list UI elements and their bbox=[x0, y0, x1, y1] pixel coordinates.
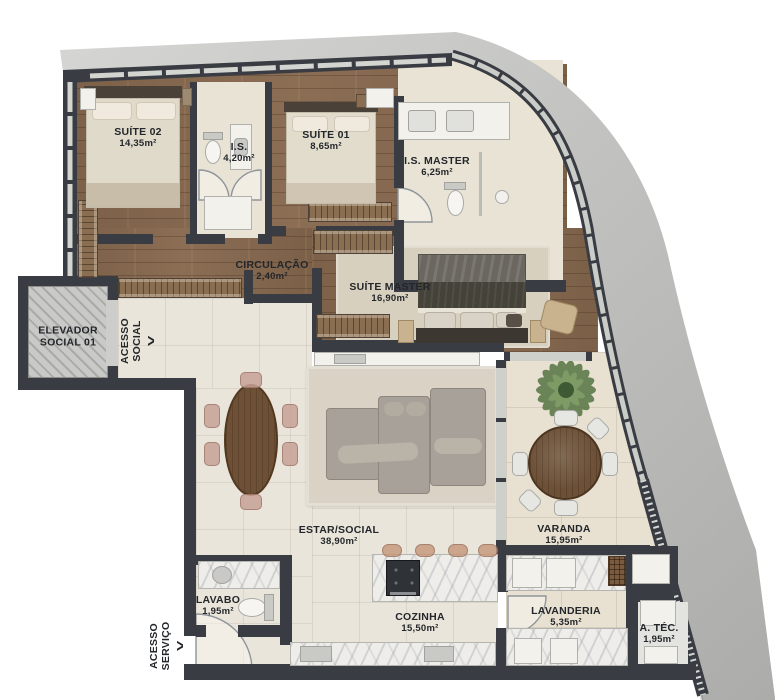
glass-frame-cap bbox=[504, 352, 510, 361]
pillow-accent bbox=[506, 314, 522, 327]
toilet-icon bbox=[205, 140, 221, 164]
wall-segment bbox=[238, 625, 292, 637]
wall-segment bbox=[394, 220, 404, 284]
washer bbox=[512, 558, 542, 588]
room-area: 15,95m² bbox=[537, 536, 590, 547]
room-label-circulacao: CIRCULAÇÃO 2,40m² bbox=[235, 260, 308, 282]
room-name: VARANDA bbox=[537, 524, 590, 536]
dryer bbox=[546, 558, 576, 588]
room-label-lavanderia: LAVANDERIA 5,35m² bbox=[531, 606, 601, 628]
room-area: 16,90m² bbox=[349, 294, 430, 305]
sink bbox=[212, 566, 232, 584]
dining-table bbox=[224, 384, 278, 496]
floor-lamp bbox=[495, 190, 509, 204]
access-social-line1: ACESSO bbox=[119, 318, 131, 364]
varanda-chair bbox=[512, 452, 528, 476]
wall-segment bbox=[272, 226, 286, 236]
room-name: LAVANDERIA bbox=[531, 606, 601, 618]
room-name: ESTAR/SOCIAL bbox=[299, 525, 379, 537]
sofa-pillow bbox=[384, 402, 404, 416]
dining-chair bbox=[204, 442, 220, 466]
wall-segment bbox=[196, 625, 206, 637]
living-varanda-glass-door[interactable] bbox=[496, 360, 506, 548]
wall-cabinet bbox=[366, 88, 394, 108]
wall-cabinet bbox=[80, 88, 96, 110]
suite-master-varanda-glass[interactable] bbox=[506, 352, 592, 361]
elevator-label-line1: ELEVADOR bbox=[38, 325, 98, 337]
room-label-suite-02: SUÍTE 02 14,35m² bbox=[114, 127, 162, 149]
varanda-chair bbox=[554, 500, 578, 516]
varanda-chair bbox=[602, 452, 618, 476]
bed-master-headboard bbox=[416, 328, 528, 343]
varanda-table bbox=[528, 426, 602, 500]
wall-segment bbox=[184, 664, 696, 680]
wall-segment bbox=[258, 234, 272, 244]
kitchen-stool bbox=[448, 544, 468, 557]
bed-suite-02-headboard bbox=[84, 86, 182, 98]
wall-segment bbox=[244, 294, 314, 303]
access-social-label: ACESSO SOCIAL bbox=[119, 318, 143, 364]
media-device bbox=[334, 354, 366, 364]
dining-chair bbox=[282, 404, 298, 428]
access-service-label: ACESSO SERVIÇO bbox=[148, 622, 172, 671]
sofa-cushion bbox=[434, 438, 482, 454]
elevator-label-line2: SOCIAL 01 bbox=[38, 337, 98, 349]
room-area: 15,50m² bbox=[395, 624, 445, 635]
sink bbox=[446, 110, 474, 132]
wall-segment bbox=[186, 234, 197, 244]
room-name: SUÍTE 01 bbox=[302, 130, 350, 142]
kitchen-sink bbox=[300, 646, 332, 662]
room-area: 8,65m² bbox=[302, 142, 350, 153]
glass-frame-cap bbox=[586, 352, 592, 361]
wardrobe bbox=[118, 278, 242, 298]
room-area: 1,95m² bbox=[639, 635, 678, 646]
room-name: I.S. bbox=[223, 142, 255, 154]
room-name: I.S. MASTER bbox=[404, 156, 470, 168]
glass-frame-cap bbox=[496, 418, 506, 422]
dining-chair bbox=[240, 372, 262, 388]
nightstand bbox=[398, 320, 414, 343]
room-area: 38,90m² bbox=[299, 537, 379, 548]
toilet-icon bbox=[238, 598, 266, 617]
duct-box bbox=[608, 556, 626, 586]
access-service-line1: ACESSO bbox=[148, 622, 160, 671]
cooktop bbox=[386, 560, 420, 596]
room-name: SUÍTE MASTER bbox=[349, 282, 430, 294]
dining-chair bbox=[282, 442, 298, 466]
access-service-line2: SERVIÇO bbox=[160, 622, 172, 671]
elevator-door bbox=[106, 300, 118, 366]
glass-frame-cap bbox=[496, 478, 506, 482]
sink bbox=[408, 110, 436, 132]
room-name: A. TÉC. bbox=[639, 623, 678, 635]
room-label-suite-master: SUÍTE MASTER 16,90m² bbox=[349, 282, 430, 304]
wardrobe bbox=[78, 200, 98, 278]
access-social-arrow-icon: > bbox=[147, 331, 154, 352]
laundry-tub bbox=[514, 638, 542, 664]
room-name: CIRCULAÇÃO bbox=[235, 260, 308, 272]
room-name: LAVABO bbox=[196, 595, 240, 607]
dining-chair bbox=[240, 494, 262, 510]
nightstand bbox=[182, 88, 192, 106]
glass-frame-cap bbox=[496, 540, 506, 548]
cooktop-knobs bbox=[390, 592, 416, 595]
pillow bbox=[92, 102, 132, 120]
access-service-arrow-icon: > bbox=[176, 636, 183, 657]
sofa-pillow bbox=[406, 402, 426, 416]
shower-glass bbox=[479, 152, 482, 216]
room-area: 6,25m² bbox=[404, 168, 470, 179]
pillow bbox=[136, 102, 176, 120]
kitchen-stool bbox=[415, 544, 435, 557]
room-area: 14,35m² bbox=[114, 139, 162, 150]
room-label-is: I.S. 4,20m² bbox=[223, 142, 255, 164]
wall-segment bbox=[184, 378, 196, 636]
floor-plan: SUÍTE 02 14,35m² I.S. 4,20m² SUÍTE 01 8,… bbox=[0, 0, 775, 700]
wardrobe bbox=[316, 314, 390, 338]
toilet-tank bbox=[444, 182, 466, 190]
room-label-lavabo: LAVABO 1,95m² bbox=[196, 595, 240, 617]
room-area: 5,35m² bbox=[531, 618, 601, 629]
room-label-varanda: VARANDA 15,95m² bbox=[537, 524, 590, 546]
bed-master-throw bbox=[418, 282, 526, 308]
toilet-tank bbox=[264, 594, 274, 621]
room-area: 4,20m² bbox=[223, 154, 255, 165]
wall-segment bbox=[265, 82, 272, 234]
wall-segment bbox=[197, 234, 225, 244]
room-label-is-master: I.S. MASTER 6,25m² bbox=[404, 156, 470, 178]
room-label-estar-social: ESTAR/SOCIAL 38,90m² bbox=[299, 525, 379, 547]
laundry-tub bbox=[550, 638, 578, 664]
room-area: 2,40m² bbox=[235, 272, 308, 283]
toilet-icon bbox=[447, 190, 464, 216]
room-label-cozinha: COZINHA 15,50m² bbox=[395, 612, 445, 634]
room-name: COZINHA bbox=[395, 612, 445, 624]
shower-tray bbox=[204, 196, 252, 230]
room-name: SUÍTE 02 bbox=[114, 127, 162, 139]
wardrobe bbox=[313, 230, 393, 254]
room-label-a-tec: A. TÉC. 1,95m² bbox=[639, 623, 678, 645]
kitchen-stool bbox=[382, 544, 402, 557]
elevator-label: ELEVADOR SOCIAL 01 bbox=[38, 325, 98, 349]
sofa-module bbox=[430, 388, 486, 486]
varanda-chair bbox=[554, 410, 578, 426]
kitchen-stool bbox=[478, 544, 498, 557]
room-area: 1,95m² bbox=[196, 607, 240, 618]
atec-equipment bbox=[644, 646, 678, 664]
room-label-suite-01: SUÍTE 01 8,65m² bbox=[302, 130, 350, 152]
glass-frame-cap bbox=[496, 360, 506, 368]
dining-chair bbox=[204, 404, 220, 428]
wardrobe bbox=[308, 202, 392, 222]
lavabo-counter bbox=[198, 561, 280, 589]
shaft-equipment bbox=[632, 554, 670, 584]
kitchen-appliance bbox=[424, 646, 454, 662]
toilet-tank bbox=[203, 132, 223, 140]
access-social-line2: SOCIAL bbox=[131, 318, 143, 364]
